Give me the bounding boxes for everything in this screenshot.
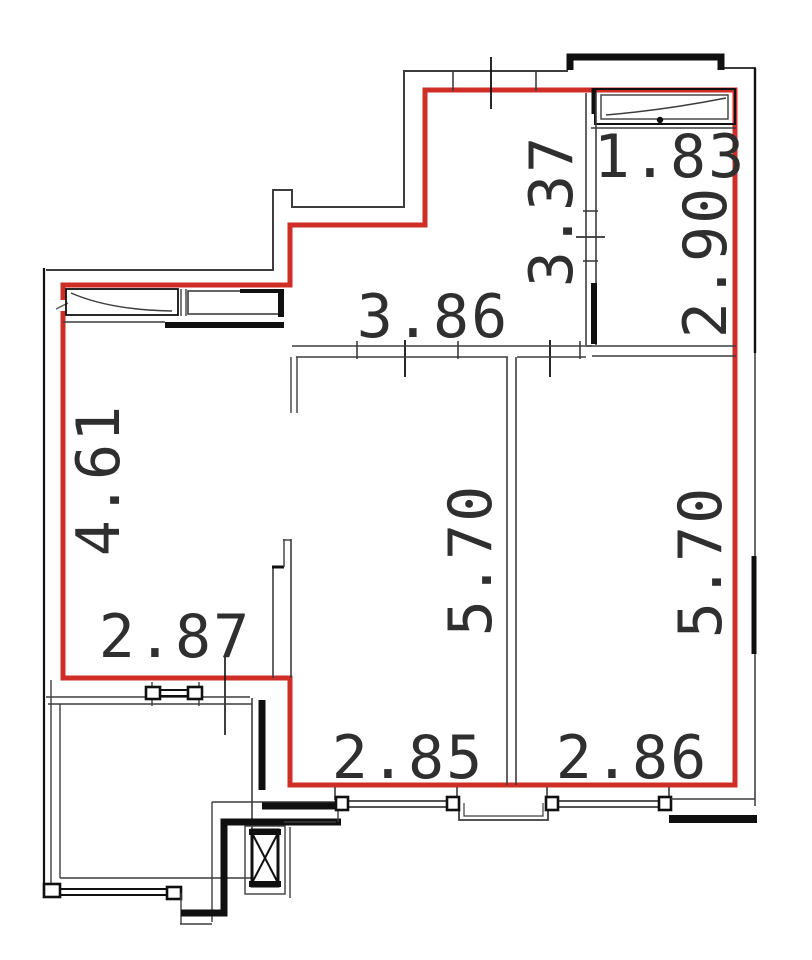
dimension-label-3: 3.86 bbox=[357, 287, 510, 347]
entry-door bbox=[46, 682, 250, 706]
dimension-label-9: 2.86 bbox=[556, 728, 709, 788]
balcony-post-left bbox=[44, 884, 60, 897]
dimension-label-8: 2.85 bbox=[332, 728, 485, 788]
recessed-door-inner bbox=[464, 803, 543, 816]
left-window-panel2 bbox=[188, 291, 280, 314]
floor-plan: 1.832.903.373.864.612.875.705.702.852.86 bbox=[0, 0, 812, 960]
window-post-1 bbox=[336, 797, 348, 810]
left-window-swoosh bbox=[71, 293, 172, 311]
entry-post-left bbox=[146, 687, 160, 699]
window-left bbox=[63, 289, 284, 325]
balcony-bump-outline bbox=[570, 57, 721, 70]
interior-walls bbox=[272, 346, 592, 785]
dimension-label-0: 1.83 bbox=[594, 127, 747, 187]
apartment-boundary-line bbox=[63, 90, 735, 785]
apartment-boundary bbox=[56, 90, 735, 785]
dimension-label-1: 2.90 bbox=[676, 186, 736, 339]
outline-top-left bbox=[46, 71, 568, 270]
recessed-door-outer bbox=[459, 803, 548, 820]
dimension-label-4: 4.61 bbox=[69, 404, 129, 557]
dimension-label-5: 2.87 bbox=[99, 607, 252, 667]
corridor bbox=[180, 802, 341, 924]
window-opening-swoosh bbox=[606, 98, 726, 115]
dimension-label-2: 3.37 bbox=[522, 135, 582, 288]
window-post-2 bbox=[447, 797, 459, 810]
entry-post-right bbox=[188, 687, 202, 699]
balcony-post-right bbox=[167, 887, 181, 899]
elevator-shaft bbox=[245, 826, 285, 894]
window-frame-inner bbox=[601, 95, 728, 119]
dimension-label-7: 5.70 bbox=[671, 486, 731, 639]
dimension-label-6: 5.70 bbox=[441, 484, 501, 637]
window-post-3 bbox=[546, 797, 558, 810]
window-post-4 bbox=[659, 797, 671, 810]
